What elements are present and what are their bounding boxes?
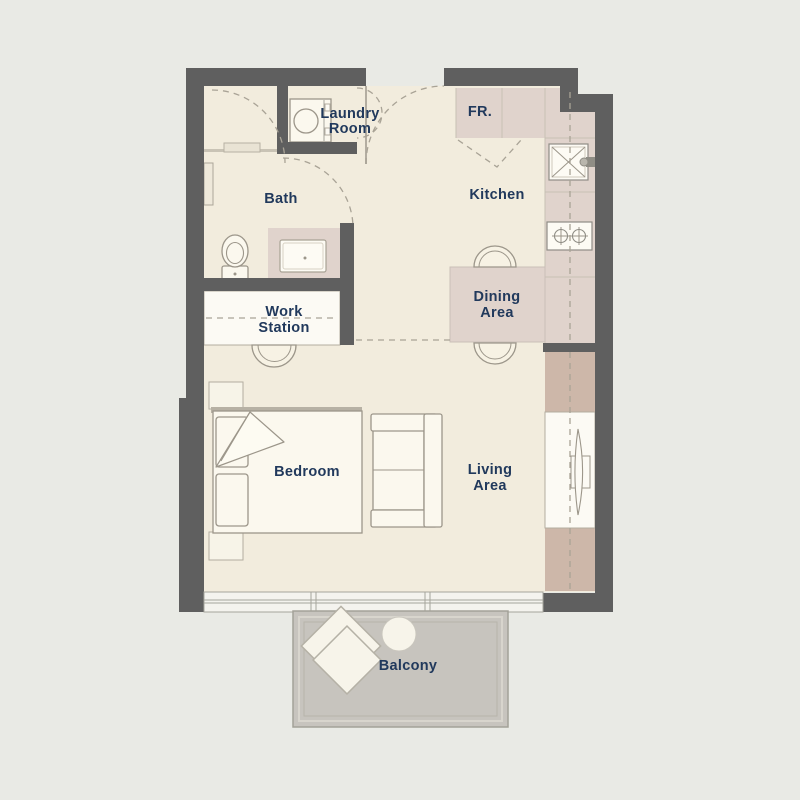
floor-plan: Laundry Room Bath Kitchen FR. Dining Are… [0,0,800,800]
kitchen-sink-icon [549,144,595,180]
label-living-line2: Area [473,478,507,494]
wall-top-right [444,68,578,86]
wall-bath-bottom [204,278,354,291]
wall-right [595,94,613,612]
label-workstation-line1: Work [265,304,303,320]
label-workstation-line2: Station [258,320,309,336]
wall-bottom-right [540,593,613,612]
label-laundry-line2: Room [329,121,371,137]
bath-sink-icon [280,240,326,272]
wardrobe-lower [545,528,595,591]
wall-workstation-right [340,278,354,345]
label-bedroom: Bedroom [274,464,340,480]
label-balcony: Balcony [379,658,438,674]
wall-laundry-bottom [277,142,357,154]
wall-dining-stub [543,343,595,352]
balcony-table-icon [382,617,416,651]
wall-left-upper [186,68,204,403]
label-dining-line1: Dining [474,289,521,305]
floor-plan-canvas: Laundry Room Bath Kitchen FR. Dining Are… [0,0,800,800]
label-bath: Bath [264,191,297,207]
label-fridge: FR. [468,104,492,120]
label-laundry-line1: Laundry [320,106,379,122]
wall-top-left [186,68,366,86]
wardrobe-upper [545,352,595,412]
label-kitchen: Kitchen [469,187,524,203]
pillow-2 [216,474,248,526]
window-band [204,592,543,612]
label-living-line1: Living [468,462,513,478]
exterior-notch [578,56,620,94]
nightstand-bottom [209,532,243,560]
sofa-icon [371,414,442,527]
nightstand-top [209,382,243,409]
wall-left-lower [179,398,204,612]
label-dining-line2: Area [480,305,514,321]
toilet-icon [222,235,248,281]
